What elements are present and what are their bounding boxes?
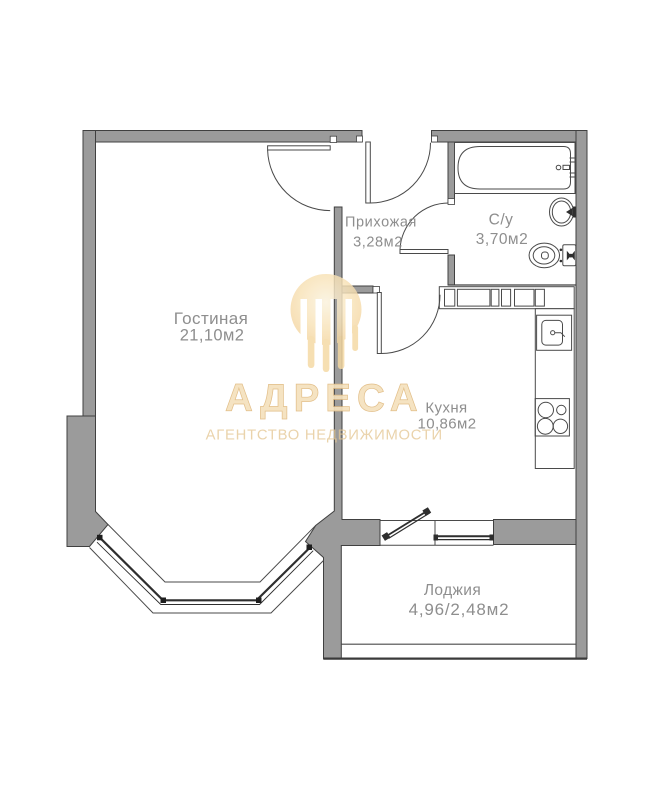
svg-text:Прихожая: Прихожая: [345, 215, 417, 231]
svg-text:3,28м2: 3,28м2: [353, 235, 403, 251]
svg-text:Лоджия: Лоджия: [424, 582, 481, 599]
svg-text:3,70м2: 3,70м2: [476, 231, 528, 248]
svg-text:Кухня: Кухня: [425, 400, 467, 417]
svg-text:21,10м2: 21,10м2: [180, 327, 245, 345]
svg-text:С/у: С/у: [489, 212, 514, 229]
svg-text:АГЕНТСТВО НЕДВИЖИМОСТИ: АГЕНТСТВО НЕДВИЖИМОСТИ: [206, 428, 443, 444]
svg-text:Гостиная: Гостиная: [174, 309, 249, 328]
svg-text:4,96/2,48м2: 4,96/2,48м2: [409, 600, 510, 619]
svg-text:АДРЕСА: АДРЕСА: [225, 377, 424, 420]
